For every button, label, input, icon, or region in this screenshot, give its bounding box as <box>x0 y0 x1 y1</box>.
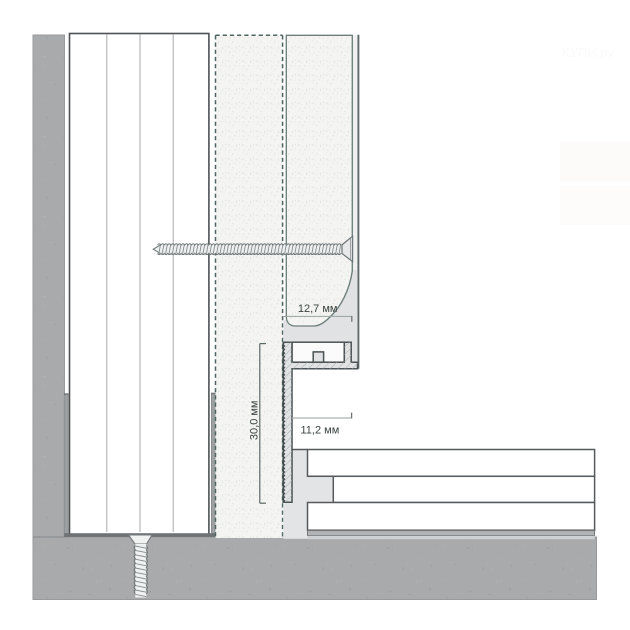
svg-text:11,2 мм: 11,2 мм <box>301 424 340 436</box>
svg-text:12,7 мм: 12,7 мм <box>298 303 338 315</box>
svg-text:30,0 мм: 30,0 мм <box>249 401 261 441</box>
svg-text:КУПИ.ру: КУПИ.ру <box>562 45 614 60</box>
